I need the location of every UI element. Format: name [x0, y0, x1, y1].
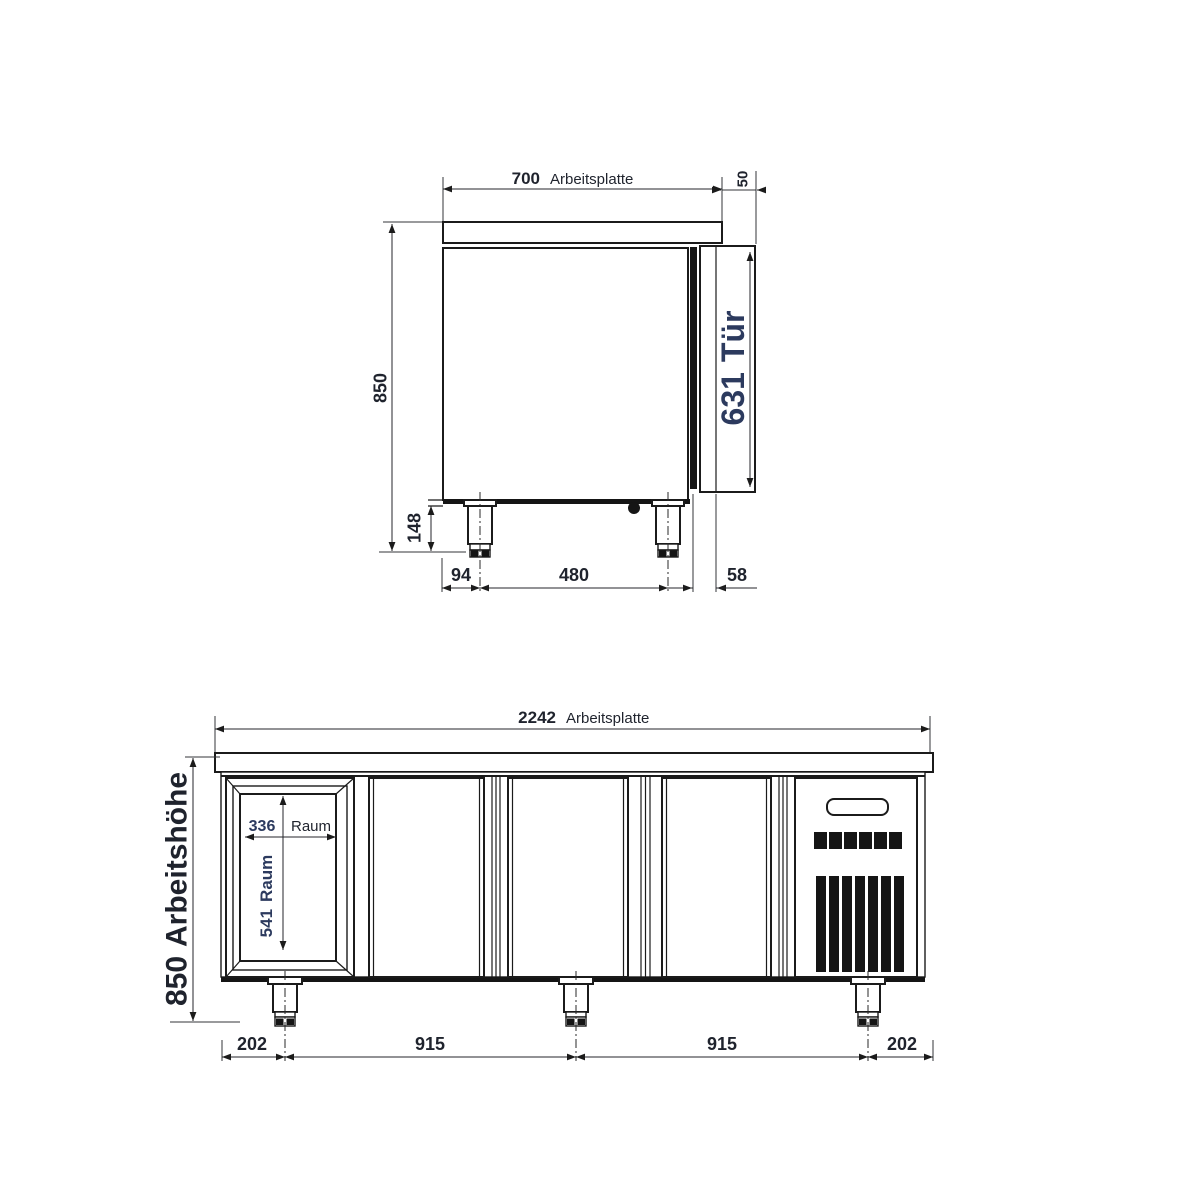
dim-bottom-chain: 202 915 915 202 — [222, 1034, 933, 1061]
dim-value: 148 — [404, 513, 424, 543]
dim-compartment-width: 336 Raum — [245, 818, 336, 837]
side-leg-rear — [652, 492, 684, 591]
front-leg-left — [268, 971, 302, 1061]
dim-value: 58 — [727, 565, 747, 585]
door-2 — [369, 778, 484, 977]
compressor-panel — [795, 778, 917, 977]
dim-value: 2242 — [518, 708, 556, 727]
dim-value: 94 — [451, 565, 471, 585]
dim-value: 850 — [370, 373, 390, 403]
drain-outlet — [628, 502, 640, 514]
front-leg-middle — [559, 971, 593, 1061]
door-3 — [508, 778, 628, 977]
dim-value: 50 — [734, 171, 751, 188]
door-hinge-bar — [690, 247, 697, 489]
dim-value: 202 — [887, 1034, 917, 1054]
side-body — [428, 248, 690, 514]
side-door — [700, 246, 755, 492]
framed-door — [226, 778, 354, 977]
dim-value: 202 — [237, 1034, 267, 1054]
compartment-height-text: 541Raum — [257, 855, 276, 938]
working-height-text: 850Arbeitshöhe — [161, 772, 194, 1006]
technical-drawing-canvas: 700 Arbeitsplatte 50 850 148 631Tür 94 4… — [0, 0, 1200, 1200]
door-4 — [662, 778, 771, 977]
dim-label: Arbeitsplatte — [550, 171, 633, 188]
dim-leg-height: 148 — [404, 506, 431, 551]
vent-grille — [816, 876, 904, 972]
dim-worktop-depth: 700 Arbeitsplatte — [443, 169, 722, 221]
dim-label: Raum — [291, 818, 331, 835]
dim-value: 700 — [512, 169, 540, 188]
side-worktop — [443, 222, 722, 243]
side-view-drawing: 700 Arbeitsplatte 50 850 148 631Tür 94 4… — [350, 150, 830, 610]
dim-label: Arbeitsplatte — [566, 710, 649, 727]
dim-value: 480 — [559, 565, 589, 585]
dim-worktop-width: 2242 Arbeitsplatte — [215, 708, 930, 752]
dim-value: 915 — [707, 1034, 737, 1054]
base-step — [428, 500, 443, 506]
front-worktop — [215, 753, 933, 772]
dim-value: 336 — [249, 818, 276, 835]
handle-slot — [827, 799, 888, 815]
dim-value: 915 — [415, 1034, 445, 1054]
front-view-drawing: 2242 Arbeitsplatte 850Arbeitshöhe 336 Ra… — [140, 680, 960, 1090]
front-leg-right — [851, 971, 885, 1061]
